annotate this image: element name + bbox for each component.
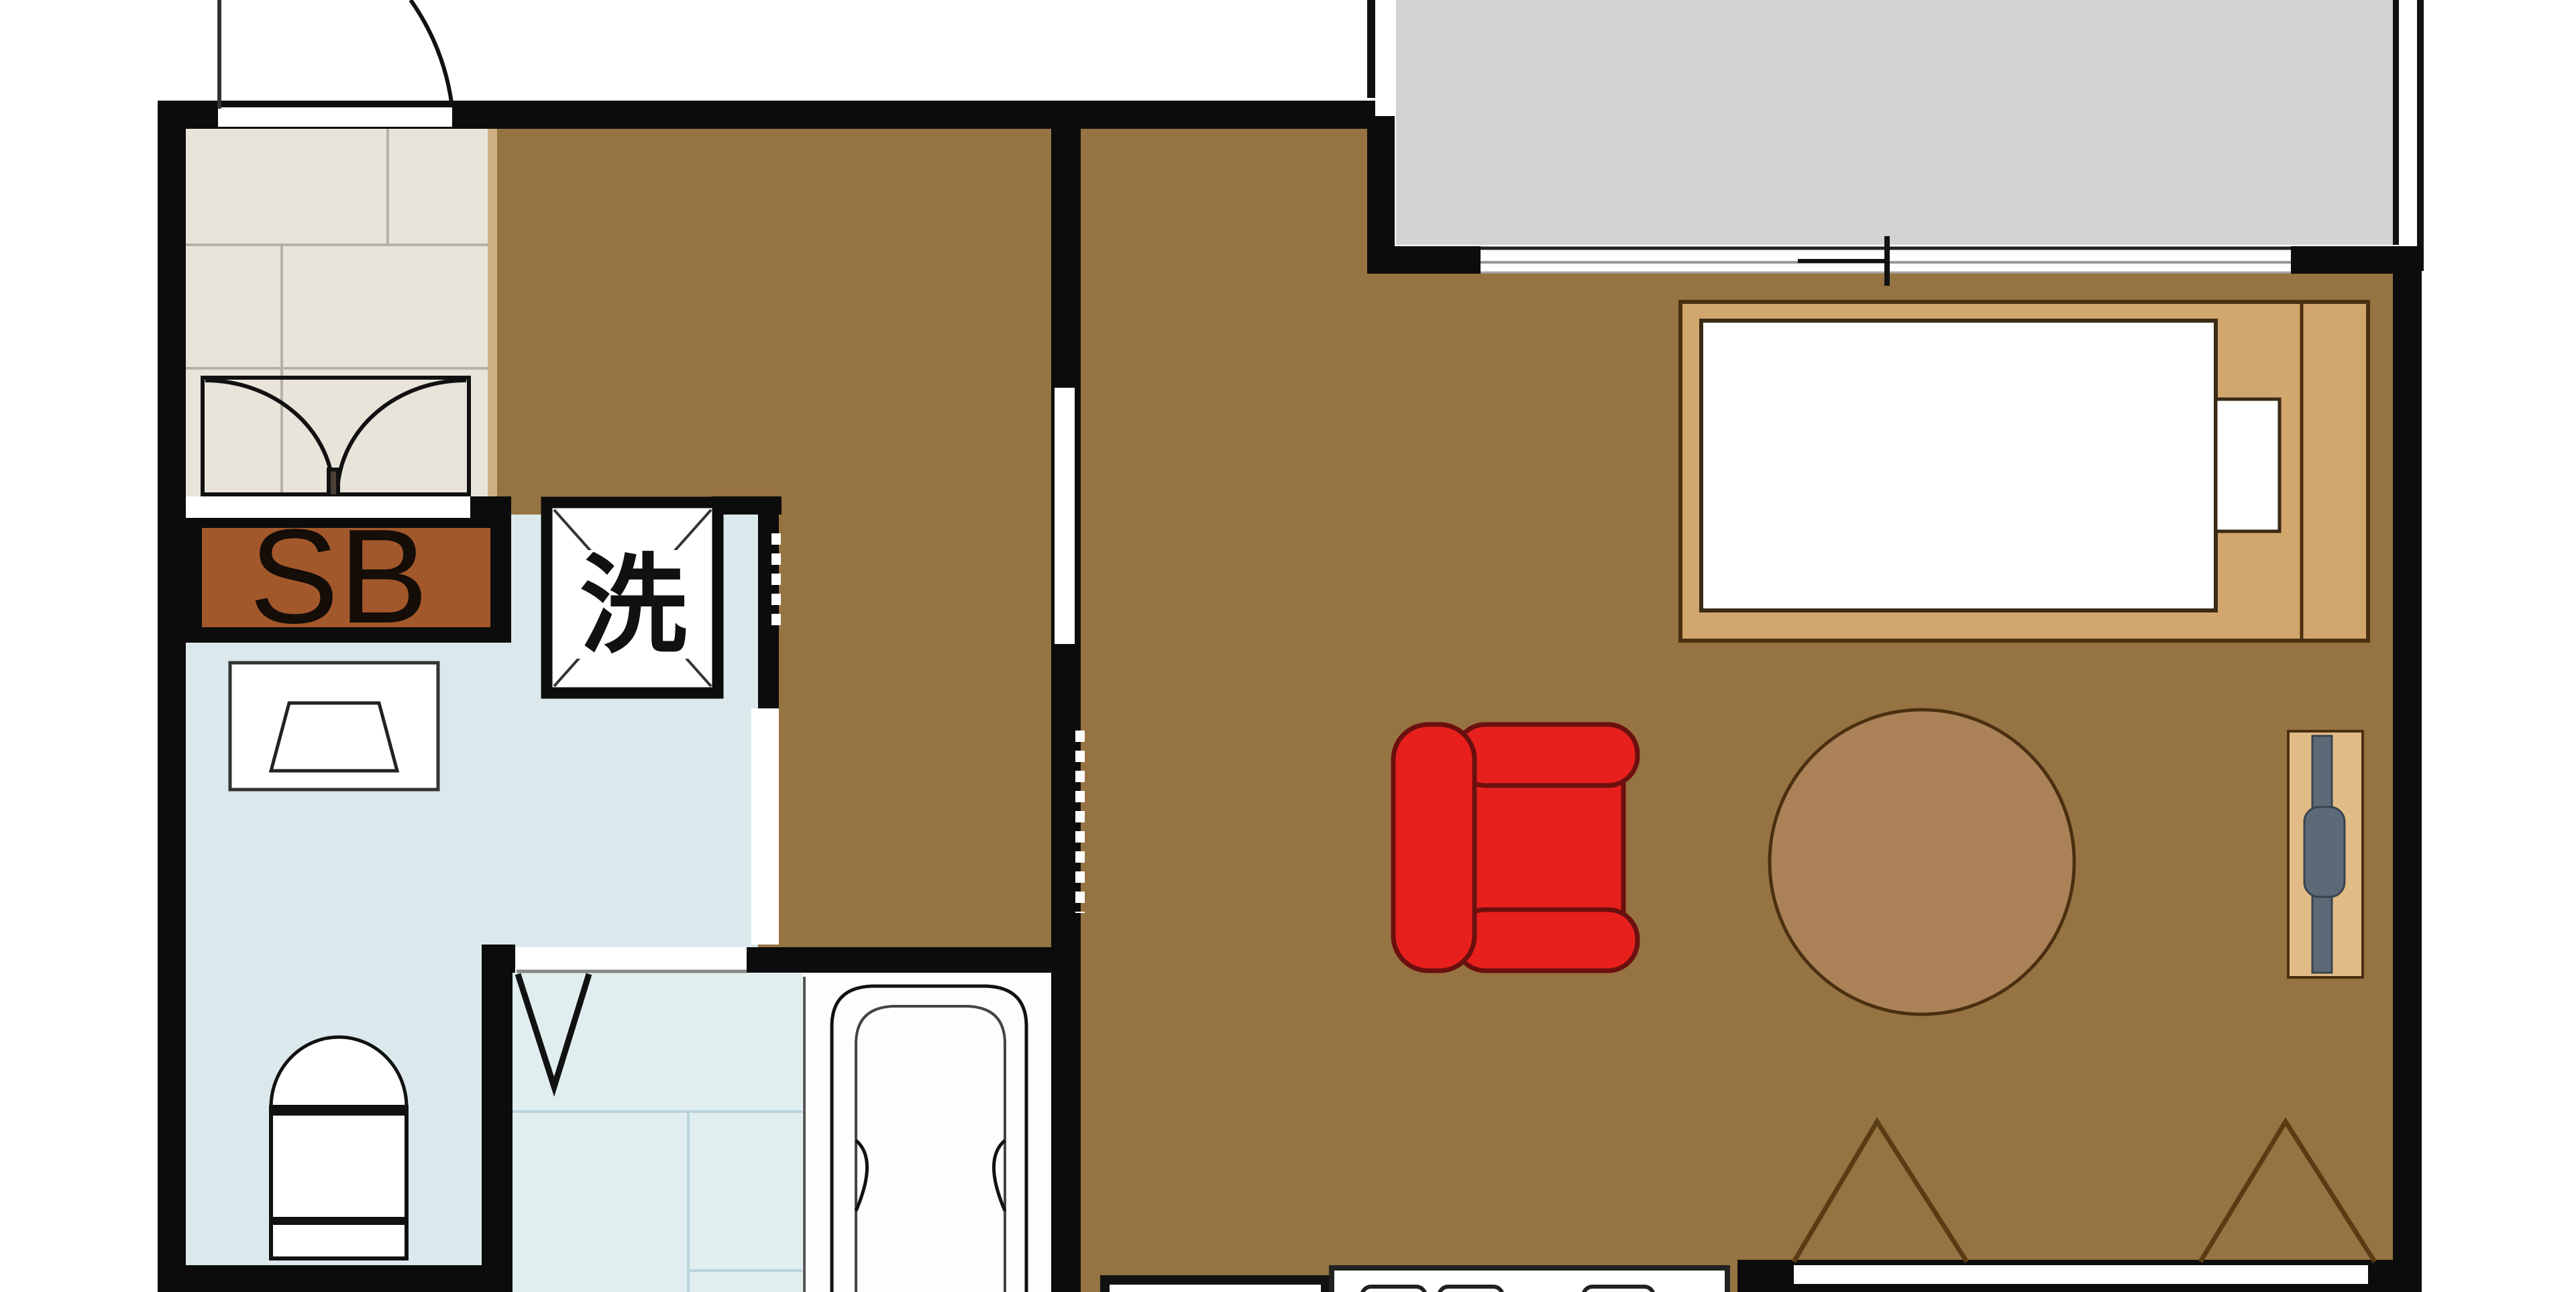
svg-text:洗: 洗 — [580, 545, 687, 665]
svg-text:SB: SB — [250, 502, 429, 651]
